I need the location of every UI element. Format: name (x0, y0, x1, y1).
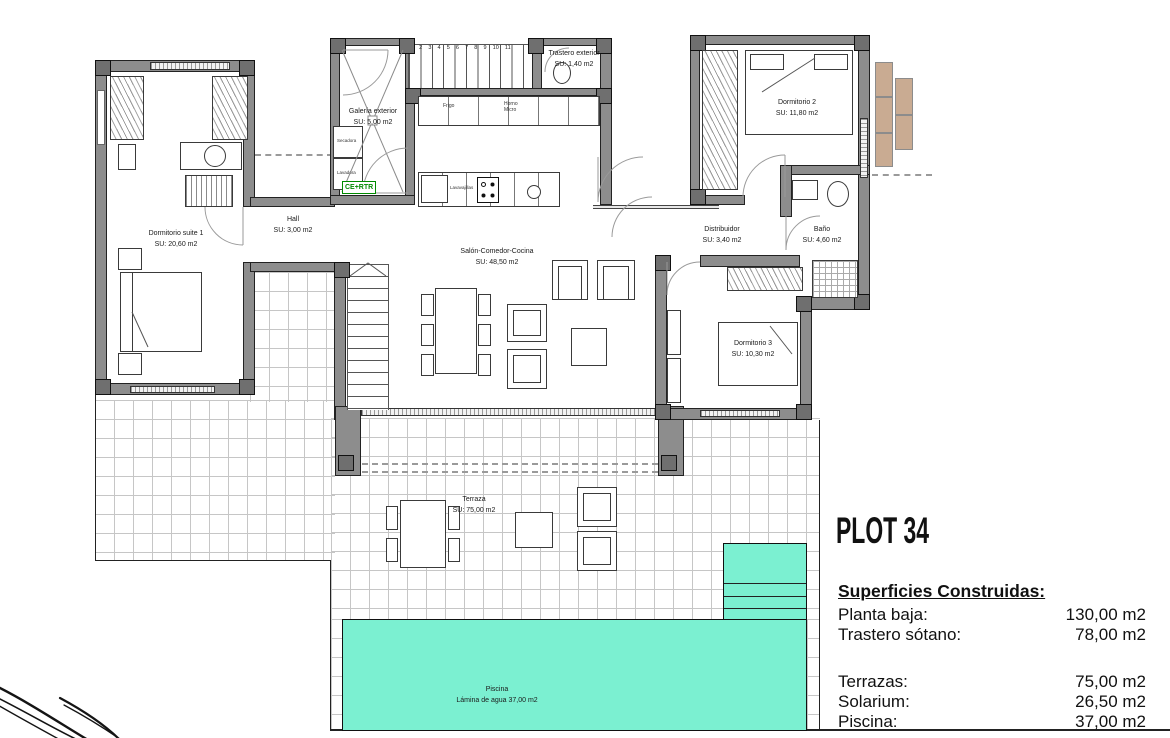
dashed-line (872, 174, 932, 176)
wood-step (895, 115, 913, 150)
plot-boundary-vert (330, 560, 331, 730)
chair (386, 506, 398, 530)
chair (421, 294, 434, 316)
coffee-table (571, 328, 607, 366)
corner-post (239, 379, 255, 395)
pool-step-line (724, 596, 806, 597)
corner-post (528, 38, 544, 54)
legend-row-piscina: Piscina: 37,00 m2 (838, 712, 1146, 732)
room-label-distribuidor: Distribuidor SU: 3,40 m2 (703, 224, 742, 246)
armchair (552, 260, 588, 300)
stair-numbers: 1 2 3 4 5 6 7 8 9 10 11 (410, 45, 534, 51)
window (700, 410, 780, 417)
sofa-module (507, 349, 547, 389)
armchair (597, 260, 635, 300)
dishwasher (421, 175, 448, 203)
plot-boundary-step (95, 560, 331, 561)
chair (448, 538, 460, 562)
wall-segment (690, 35, 870, 45)
corner-post (854, 35, 870, 51)
stairs-down (347, 264, 389, 410)
room-label-dormitorio-2: Dormitorio 2 SU: 11,80 m2 (776, 97, 818, 119)
dashed-line (255, 154, 333, 156)
wall-segment (405, 88, 612, 96)
room-label-piscina: Piscina Lámina de agua 37,00 m2 (456, 684, 537, 706)
label-secadora: Secadora (337, 138, 356, 143)
kitchen-sink (527, 185, 541, 199)
sink (204, 145, 226, 167)
sun-lounger (577, 531, 617, 571)
terrace-grid-belowsuite (95, 400, 335, 560)
chair (478, 324, 491, 346)
corner-post (690, 189, 706, 205)
wood-step (875, 133, 893, 167)
side-table (515, 512, 553, 548)
wardrobe (110, 76, 144, 140)
legend-row-terrazas: Terrazas: 75,00 m2 (838, 672, 1146, 692)
sink (792, 180, 818, 200)
legend-heading: Superficies Construidas: (838, 581, 1146, 602)
pool-basin (342, 619, 807, 731)
corner-post (330, 38, 346, 54)
corner-post (655, 404, 671, 420)
wood-step (895, 78, 913, 115)
shower (185, 175, 233, 207)
window (97, 90, 105, 145)
legend-group-exterior: Terrazas: 75,00 m2 Solarium: 26,50 m2 Pi… (838, 672, 1146, 732)
wall-segment (334, 262, 346, 420)
pool-step-line (724, 583, 806, 584)
sun-lounger (577, 487, 617, 527)
chair (421, 354, 434, 376)
wall-segment (780, 165, 870, 175)
wood-step (875, 97, 893, 133)
room-label-trastero-exterior: Trastero exterior SU: 1,40 m2 (548, 48, 599, 70)
terrace-grid-left (250, 272, 335, 402)
plot-title: PLOT 34 (836, 510, 929, 552)
toilet (118, 144, 136, 170)
dining-table (435, 288, 477, 374)
wardrobe (212, 76, 248, 140)
cabinet (667, 310, 681, 355)
shower (812, 260, 858, 298)
corner-post (239, 60, 255, 76)
outdoor-table (400, 500, 446, 568)
closet (727, 267, 803, 291)
wood-step (875, 62, 893, 97)
wall-segment (250, 262, 335, 272)
plot-boundary-right (819, 420, 820, 730)
legend-row-planta-baja: Planta baja: 130,00 m2 (838, 605, 1146, 625)
hob-burners (481, 182, 486, 187)
label-lavavajillas: Lavavajillas (450, 185, 473, 190)
corner-post (690, 35, 706, 51)
corner-post (95, 60, 111, 76)
corner-post (399, 38, 415, 54)
label-lavadora: Lavadora (337, 170, 356, 175)
threshold-line (593, 205, 719, 209)
room-label-salon-comedor-cocina: Salón-Comedor-Cocina SU: 48,50 m2 (460, 246, 533, 268)
terrace-grid-poolleft (331, 619, 342, 730)
corner-post (796, 296, 812, 312)
room-label-bano: Baño SU: 4,60 m2 (803, 224, 842, 246)
window (150, 62, 230, 70)
chair (421, 324, 434, 346)
label-horno-micro: Horno Micro (504, 101, 528, 113)
chair (478, 354, 491, 376)
dashed-line (362, 463, 658, 465)
wall-segment (243, 262, 255, 395)
corner-post (338, 455, 354, 471)
corner-post (661, 455, 677, 471)
surface-legend: Superficies Construidas: Planta baja: 13… (838, 581, 1146, 732)
corner-post (796, 404, 812, 420)
wall-segment (690, 35, 700, 205)
room-label-hall: Hall SU: 3,00 m2 (274, 214, 313, 236)
room-label-terraza: Terraza SU: 75,00 m2 (453, 494, 496, 516)
room-label-galeria-exterior: Galería exterior SU: 5,00 m2 (349, 106, 397, 128)
bed-headboard-line (132, 273, 133, 351)
corner-post (655, 255, 671, 271)
wall-segment (780, 165, 792, 217)
hob (477, 177, 499, 203)
corner-post (95, 379, 111, 395)
wall-segment (250, 197, 335, 207)
pillow (750, 54, 784, 70)
sofa-module (507, 304, 547, 342)
wall-segment (700, 255, 800, 267)
corner-post (334, 262, 350, 278)
wall-segment (655, 255, 667, 420)
toilet (827, 181, 849, 207)
room-label-dormitorio-3: Dormitorio 3 SU: 10,30 m2 (732, 338, 775, 360)
floor-plan-sheet: 1 2 3 4 5 6 7 8 9 10 11 (0, 0, 1170, 738)
wardrobe (702, 50, 738, 190)
sliding-glass-wall (361, 408, 659, 416)
legend-row-trastero-sotano: Trastero sótano: 78,00 m2 (838, 625, 1146, 645)
wall-segment (600, 38, 612, 205)
chair (478, 294, 491, 316)
window (130, 386, 215, 393)
pool-step-line (724, 608, 806, 609)
nightstand (118, 353, 142, 375)
room-label-dormitorio-suite-1: Dormitorio suite 1 SU: 20,60 m2 (149, 228, 204, 250)
label-ce-rtr: CE+RTR (342, 181, 376, 194)
wall-segment (330, 195, 415, 205)
pillow (814, 54, 848, 70)
dashed-line (362, 471, 658, 473)
chair (386, 538, 398, 562)
cabinet (667, 358, 681, 403)
nightstand (118, 248, 142, 270)
legend-row-solarium: Solarium: 26,50 m2 (838, 692, 1146, 712)
label-frigo: Frigo (443, 103, 454, 109)
plot-boundary-left (95, 395, 96, 561)
window (860, 118, 868, 178)
